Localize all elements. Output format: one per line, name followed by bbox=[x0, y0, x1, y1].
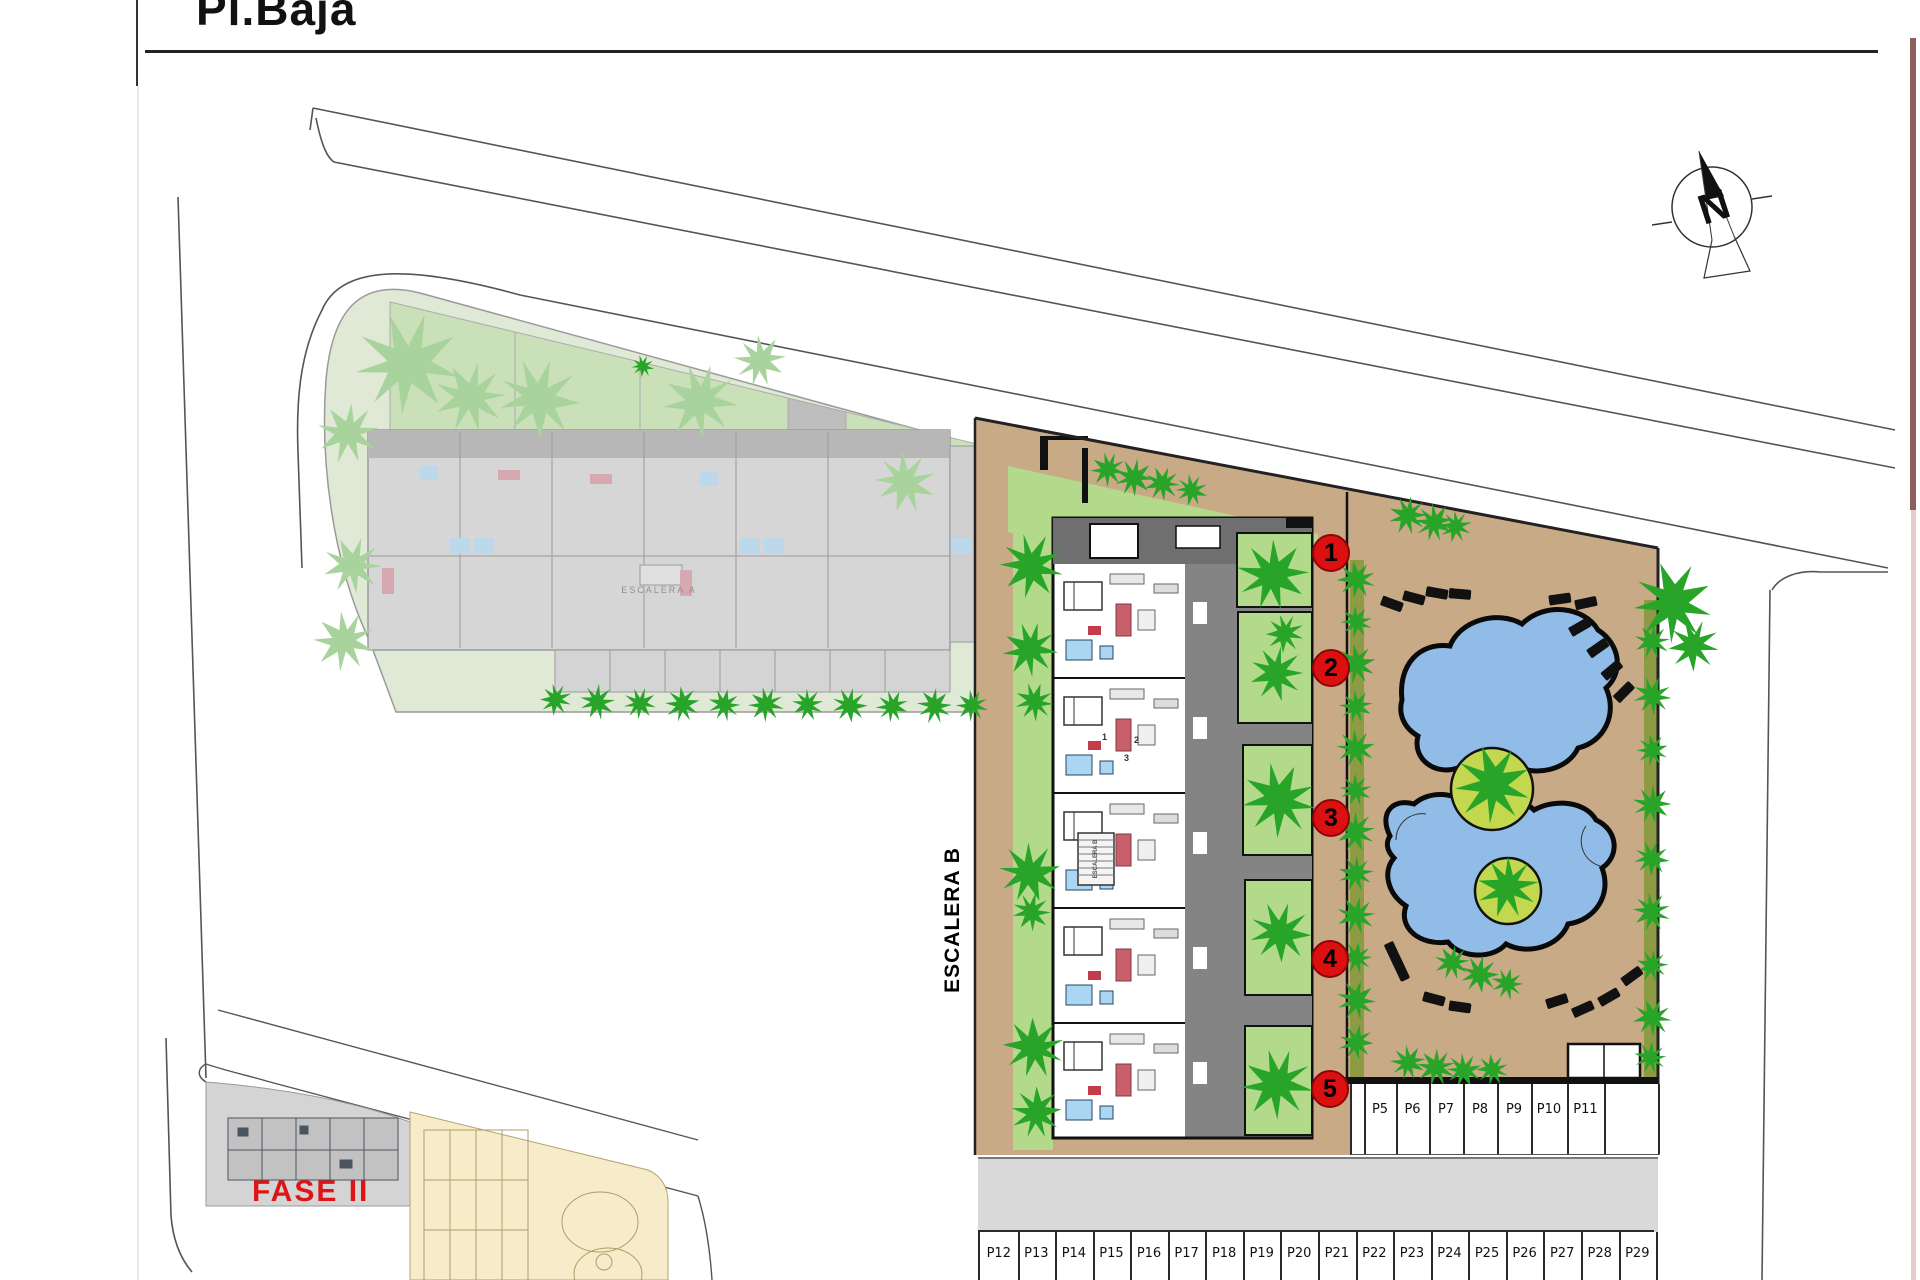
parking-stall: P5 bbox=[1364, 1084, 1398, 1154]
parking-stall: P25 bbox=[1468, 1232, 1508, 1280]
parking-stall: P21 bbox=[1318, 1232, 1358, 1280]
page-title: Pl.Baja bbox=[196, 0, 356, 36]
parking-stall: P11 bbox=[1567, 1084, 1606, 1154]
parking-stall: P15 bbox=[1093, 1232, 1133, 1280]
parking-stall-label: P5 bbox=[1364, 1102, 1396, 1117]
parking-stall-label: P27 bbox=[1543, 1246, 1581, 1261]
parking-stall-label: P11 bbox=[1567, 1102, 1604, 1117]
parking-stall-label: P26 bbox=[1506, 1246, 1544, 1261]
access-road bbox=[978, 1157, 1658, 1232]
main-parcel bbox=[975, 418, 1658, 1155]
lounger-icon bbox=[1449, 588, 1472, 600]
parking-stall-label: P10 bbox=[1531, 1102, 1567, 1117]
parking-stall: P20 bbox=[1280, 1232, 1320, 1280]
parking-stall-label: P22 bbox=[1356, 1246, 1394, 1261]
site-plan-page: Pl.Baja ESCALERA B ESCALERA B ESCALERA A… bbox=[0, 0, 1920, 1280]
parking-stall: P8 bbox=[1463, 1084, 1499, 1154]
parking-stall-label: P18 bbox=[1205, 1246, 1243, 1261]
parking-stall-label: P20 bbox=[1280, 1246, 1318, 1261]
parking-stall-label: P15 bbox=[1093, 1246, 1131, 1261]
parking-stall-label: P7 bbox=[1429, 1102, 1463, 1117]
page-edge-right bbox=[1910, 38, 1916, 510]
parking-stall: P28 bbox=[1581, 1232, 1621, 1280]
unit-number: 2 bbox=[1134, 735, 1139, 745]
escalera-b-inner-label: ESCALERA B bbox=[1093, 840, 1099, 879]
fase-ii-label: FASE II bbox=[252, 1175, 369, 1209]
unit-badge: 4 bbox=[1311, 940, 1349, 978]
parking-stall: P14 bbox=[1055, 1232, 1095, 1280]
parking-stall: P13 bbox=[1018, 1232, 1058, 1280]
parking-stall-label: P21 bbox=[1318, 1246, 1356, 1261]
parking-stall-label: P13 bbox=[1018, 1246, 1056, 1261]
parking-stall: P12 bbox=[980, 1232, 1020, 1280]
parking-stall: P6 bbox=[1396, 1084, 1431, 1154]
parking-stall-label: P14 bbox=[1055, 1246, 1093, 1261]
escalera-a-label: ESCALERA A bbox=[621, 585, 697, 595]
parking-row-right: P5P6P7P8P9P10P11 bbox=[1350, 1084, 1658, 1155]
parking-stall: P29 bbox=[1619, 1232, 1659, 1280]
road-left-edge bbox=[178, 197, 206, 1078]
parking-stall bbox=[1604, 1084, 1660, 1154]
parking-stall-label: P17 bbox=[1168, 1246, 1206, 1261]
parking-stall: P16 bbox=[1130, 1232, 1170, 1280]
title-rule bbox=[145, 50, 1878, 53]
unit-number: 3 bbox=[1124, 753, 1129, 763]
parking-stall: P10 bbox=[1531, 1084, 1569, 1154]
unit-badge: 5 bbox=[1311, 1070, 1349, 1108]
unit-badge: 2 bbox=[1312, 649, 1350, 687]
parking-stall-label: P29 bbox=[1619, 1246, 1657, 1261]
road-right-edge bbox=[1762, 590, 1770, 1280]
unit-number: 1 bbox=[1102, 732, 1107, 742]
page-edge-right-lower bbox=[1911, 510, 1916, 1280]
parking-stall: P26 bbox=[1506, 1232, 1546, 1280]
parking-stall: P23 bbox=[1393, 1232, 1433, 1280]
parking-stall: P7 bbox=[1429, 1084, 1465, 1154]
parking-stall: P27 bbox=[1543, 1232, 1583, 1280]
parking-stall-label: P19 bbox=[1243, 1246, 1281, 1261]
parking-stall-label: P8 bbox=[1463, 1102, 1497, 1117]
parking-stall: P17 bbox=[1168, 1232, 1208, 1280]
main-building bbox=[1053, 518, 1312, 1138]
parking-stall-label: P12 bbox=[980, 1246, 1018, 1261]
escalera-b-label: ESCALERA B bbox=[941, 847, 965, 993]
page-edge-left bbox=[137, 0, 138, 1280]
parking-stall-label: P23 bbox=[1393, 1246, 1431, 1261]
parking-stall: P18 bbox=[1205, 1232, 1245, 1280]
parking-stall-label: P25 bbox=[1468, 1246, 1506, 1261]
parking-stall-label: P28 bbox=[1581, 1246, 1619, 1261]
parking-stall: P9 bbox=[1497, 1084, 1533, 1154]
mini-map bbox=[199, 1010, 712, 1280]
parking-stall-label: P9 bbox=[1497, 1102, 1531, 1117]
parking-stall-label: P24 bbox=[1431, 1246, 1469, 1261]
deck-bottom-wall bbox=[1345, 1077, 1658, 1084]
unit-badge: 1 bbox=[1312, 534, 1350, 572]
mini-phase1-area bbox=[410, 1112, 668, 1280]
mini-phase2-building bbox=[228, 1118, 398, 1180]
parking-stall-label: P6 bbox=[1396, 1102, 1429, 1117]
parking-stall: P19 bbox=[1243, 1232, 1283, 1280]
parking-stall: P24 bbox=[1431, 1232, 1471, 1280]
parking-stall-label: P16 bbox=[1130, 1246, 1168, 1261]
parking-row-bottom: P12P13P14P15P16P17P18P19P20P21P22P23P24P… bbox=[978, 1230, 1654, 1280]
unit-badge: 3 bbox=[1312, 799, 1350, 837]
parking-stall: P22 bbox=[1356, 1232, 1396, 1280]
